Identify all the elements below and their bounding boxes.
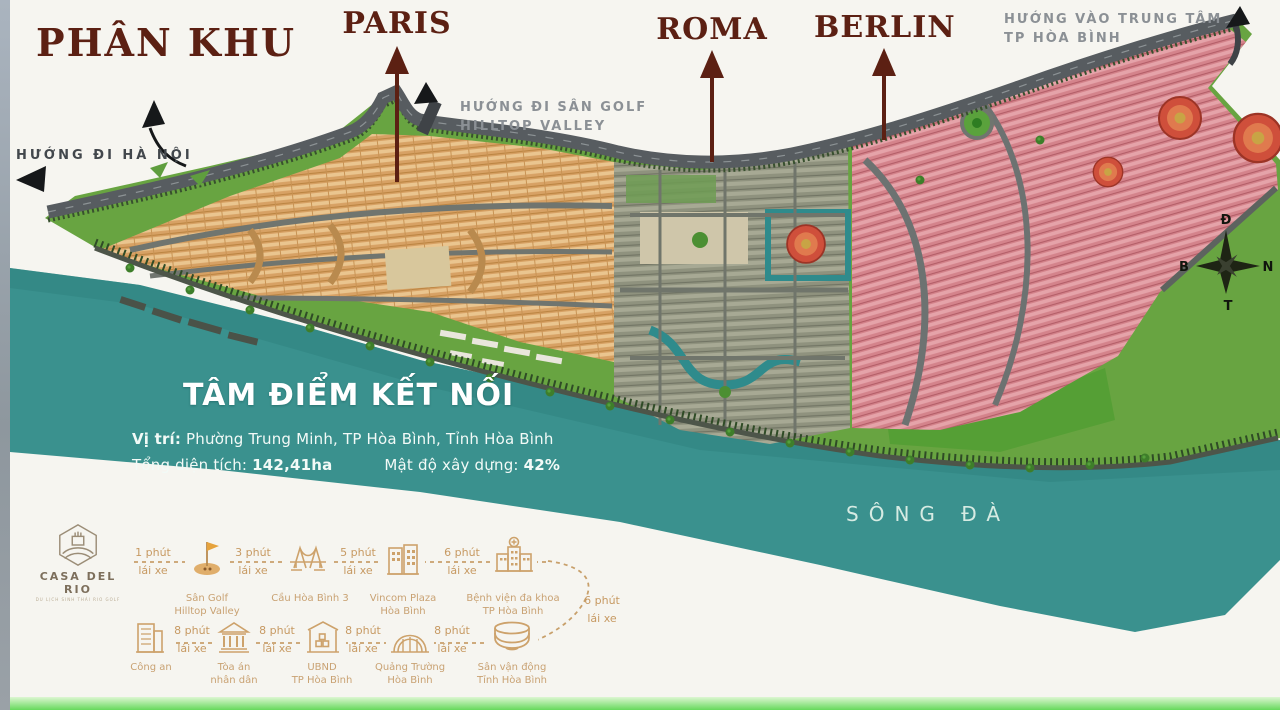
travel-time: 3 phútlái xe — [223, 544, 283, 580]
travel-time: 6 phútlái xe — [432, 544, 492, 580]
direction-golf-line1: HƯỚNG ĐI SÂN GOLF — [460, 98, 647, 117]
stats-line: Tổng diện tích: 142,41ha Mật độ xây dựng… — [132, 456, 560, 474]
destination-name: Vincom PlazaHòa Bình — [348, 592, 458, 618]
bottom-edge-strip — [10, 697, 1280, 710]
area-value: 142,41ha — [252, 456, 332, 474]
master-plan-poster: Đ B N T PHÂN KHU PARIS ROMA BERLIN HƯỚNG… — [0, 0, 1280, 710]
brand-name: CASA DEL RIO — [26, 570, 130, 596]
travel-time: 5 phútlái xe — [328, 544, 388, 580]
zone-label-paris: PARIS — [327, 6, 467, 41]
brand-hexagon-icon — [55, 522, 101, 568]
brand-logo: CASA DEL RIO DU LỊCH SINH THÁI RIO GOLF — [26, 522, 130, 602]
direction-golf-line2: HILLTOP VALLEY — [460, 117, 647, 136]
travel-time: 8 phútlái xe — [247, 622, 307, 658]
zone-label-berlin: BERLIN — [814, 10, 954, 45]
density-label: Mật độ xây dựng: — [384, 456, 523, 474]
mall-icon — [381, 536, 425, 582]
destination-name: Sân vận độngTỉnh Hòa Bình — [457, 661, 567, 687]
zone-roma-area — [614, 146, 850, 444]
compass-east-letter: Đ — [1221, 213, 1232, 228]
golf-flag-icon — [185, 536, 229, 580]
zone-label-roma: ROMA — [642, 12, 782, 47]
location-label: Vị trí: — [132, 430, 181, 448]
direction-center-line2: TP HÒA BÌNH — [1004, 29, 1222, 48]
page-title: PHÂN KHU — [36, 20, 296, 65]
stadium-icon — [486, 614, 538, 660]
density-value: 42% — [524, 456, 561, 474]
direction-center-line1: HƯỚNG VÀO TRUNG TÂM — [1004, 10, 1222, 29]
compass-west-letter: T — [1224, 299, 1233, 314]
destination-name: Sân GolfHilltop Valley — [152, 592, 262, 618]
hospital-icon — [491, 534, 537, 582]
compass-north-letter: B — [1179, 260, 1189, 275]
direction-hanoi: HƯỚNG ĐI HÀ NỘI — [16, 146, 193, 165]
travel-time: 1 phútlái xe — [123, 544, 183, 580]
location-value: Phường Trung Minh, TP Hòa Bình, Tỉnh Hòa… — [181, 430, 554, 448]
travel-time: 8 phútlái xe — [162, 622, 222, 658]
destination-name: Quảng TrườngHòa Bình — [355, 661, 465, 687]
travel-time: 8 phútlái xe — [422, 622, 482, 658]
area-label: Tổng diện tích: — [132, 456, 252, 474]
location-line: Vị trí: Phường Trung Minh, TP Hòa Bình, … — [132, 430, 554, 448]
travel-time: 8 phútlái xe — [333, 622, 393, 658]
compass-south-letter: N — [1263, 260, 1274, 275]
direction-golf: HƯỚNG ĐI SÂN GOLF HILLTOP VALLEY — [460, 98, 647, 136]
travel-time: 6 phútlái xe — [572, 592, 632, 628]
brand-tagline: DU LỊCH SINH THÁI RIO GOLF — [26, 597, 130, 602]
connection-headline: TÂM ĐIỂM KẾT NỐI — [183, 378, 514, 413]
left-edge-strip — [0, 0, 10, 710]
bridge-icon — [286, 538, 330, 582]
river-name: SÔNG ĐÀ — [846, 502, 1010, 526]
direction-city-center: HƯỚNG VÀO TRUNG TÂM TP HÒA BÌNH — [1004, 10, 1222, 48]
